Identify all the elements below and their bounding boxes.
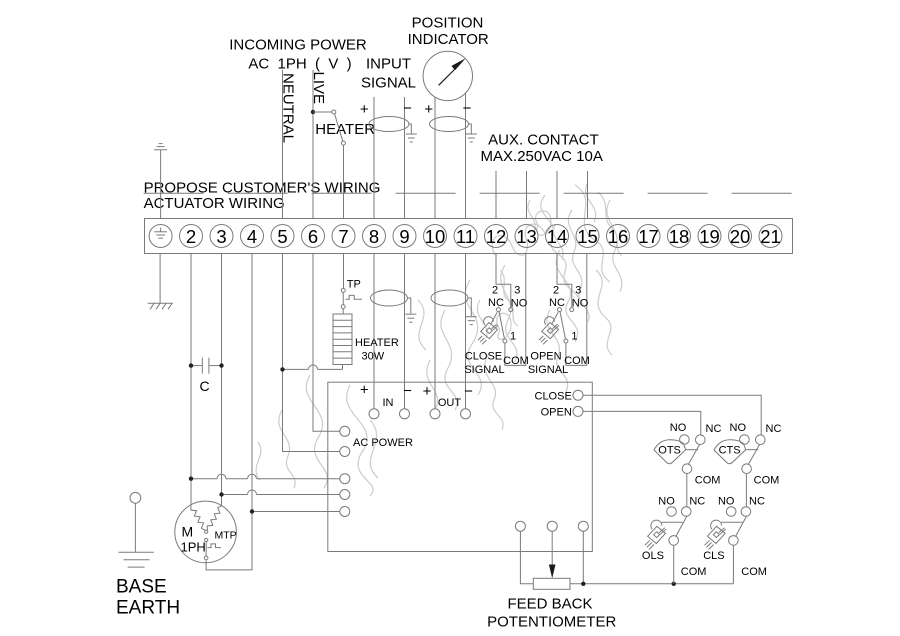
svg-text:1: 1	[510, 331, 516, 343]
svg-text:ACTUATOR WIRING: ACTUATOR WIRING	[144, 195, 285, 212]
svg-text:+: +	[360, 382, 369, 399]
svg-text:2: 2	[492, 285, 498, 297]
svg-text:MTP: MTP	[215, 530, 237, 542]
svg-text:10: 10	[425, 226, 446, 247]
svg-text:NC: NC	[706, 423, 722, 435]
svg-text:4: 4	[247, 226, 257, 247]
svg-text:NO: NO	[718, 496, 735, 508]
svg-text:NC: NC	[766, 423, 782, 435]
svg-text:BASE: BASE	[116, 576, 167, 597]
svg-text:8: 8	[369, 226, 379, 247]
svg-text:20: 20	[730, 226, 751, 247]
svg-text:POSITION: POSITION	[412, 15, 484, 32]
svg-text:AUX. CONTACT: AUX. CONTACT	[488, 132, 599, 149]
svg-text:INCOMING POWER: INCOMING POWER	[229, 37, 367, 54]
svg-text:SIGNAL: SIGNAL	[528, 364, 568, 376]
svg-text:16: 16	[608, 226, 629, 247]
svg-text:3: 3	[514, 285, 520, 297]
svg-text:NC: NC	[488, 297, 504, 309]
svg-text:OUT: OUT	[438, 397, 462, 409]
svg-text:FEED BACK: FEED BACK	[507, 596, 592, 613]
svg-text:HEATER: HEATER	[315, 121, 375, 138]
svg-text:6: 6	[308, 226, 318, 247]
svg-text:NO: NO	[730, 422, 747, 434]
svg-text:CLOSE: CLOSE	[535, 390, 572, 402]
svg-text:12: 12	[486, 226, 507, 247]
svg-text:NO: NO	[511, 297, 528, 309]
svg-text:11: 11	[456, 226, 475, 247]
svg-text:NO: NO	[572, 297, 589, 309]
svg-text:+: +	[424, 101, 433, 118]
svg-text:15: 15	[577, 226, 598, 247]
svg-text:COM: COM	[695, 475, 721, 487]
svg-text:1: 1	[571, 331, 577, 343]
svg-text:COM: COM	[681, 566, 707, 578]
svg-text:2: 2	[553, 285, 559, 297]
svg-text:NO: NO	[670, 422, 687, 434]
svg-text:21: 21	[760, 226, 781, 247]
svg-text:CLS: CLS	[703, 550, 724, 562]
svg-text:14: 14	[547, 226, 568, 247]
svg-text:3: 3	[216, 226, 226, 247]
svg-text:COM: COM	[741, 566, 767, 578]
svg-text:C: C	[200, 378, 210, 394]
svg-text:SIGNAL: SIGNAL	[464, 364, 504, 376]
svg-text:17: 17	[638, 226, 659, 247]
svg-text:NC: NC	[689, 496, 705, 508]
svg-text:M: M	[182, 524, 194, 540]
svg-text:OPEN: OPEN	[541, 407, 572, 419]
svg-text:+: +	[360, 101, 369, 118]
svg-text:EARTH: EARTH	[116, 598, 180, 619]
svg-text:9: 9	[399, 226, 409, 247]
svg-text:SIGNAL: SIGNAL	[361, 75, 416, 92]
svg-text:HEATER: HEATER	[355, 337, 399, 349]
svg-text:3: 3	[575, 285, 581, 297]
svg-text:IN: IN	[383, 397, 394, 409]
svg-text:AC POWER: AC POWER	[353, 437, 413, 449]
svg-text:18: 18	[669, 226, 690, 247]
svg-text:−: −	[463, 100, 472, 117]
svg-text:+: +	[423, 383, 432, 400]
svg-text:POTENTIOMETER: POTENTIOMETER	[487, 613, 616, 630]
svg-text:−: −	[403, 382, 412, 399]
svg-text:NC: NC	[549, 297, 565, 309]
svg-text:OPEN: OPEN	[530, 351, 561, 363]
svg-text:TP: TP	[347, 279, 361, 291]
svg-text:30W: 30W	[362, 351, 385, 363]
svg-text:CTS: CTS	[719, 445, 741, 457]
svg-text:OTS: OTS	[658, 445, 681, 457]
svg-text:13: 13	[516, 226, 537, 247]
svg-text:OLS: OLS	[642, 550, 664, 562]
svg-text:NO: NO	[658, 496, 675, 508]
svg-text:19: 19	[699, 226, 720, 247]
svg-text:5: 5	[277, 226, 287, 247]
svg-text:−: −	[403, 100, 412, 117]
svg-text:AC 1PH ( V ): AC 1PH ( V )	[248, 56, 351, 73]
svg-text:7: 7	[338, 226, 348, 247]
svg-text:INDICATOR: INDICATOR	[408, 31, 489, 48]
svg-text:INPUT: INPUT	[366, 56, 411, 73]
svg-text:CLOSE: CLOSE	[465, 351, 502, 363]
svg-text:MAX.250VAC 10A: MAX.250VAC 10A	[481, 148, 603, 165]
svg-text:−: −	[464, 383, 473, 400]
svg-text:2: 2	[186, 226, 196, 247]
svg-text:COM: COM	[503, 355, 529, 367]
svg-text:NC: NC	[749, 496, 765, 508]
svg-text:1PH: 1PH	[181, 540, 206, 555]
svg-text:COM: COM	[754, 475, 780, 487]
